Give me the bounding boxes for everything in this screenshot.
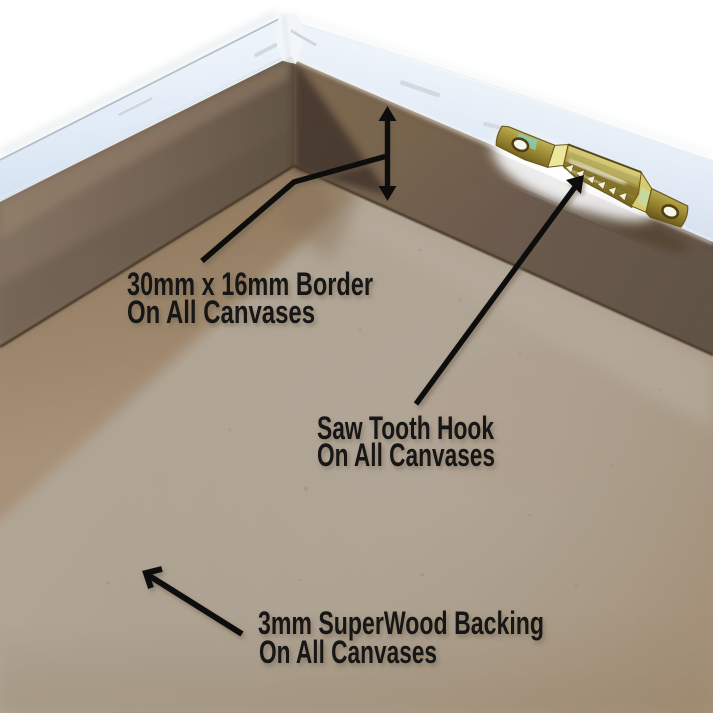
svg-text:On All Canvases: On All Canvases bbox=[317, 437, 495, 473]
svg-text:On All Canvases: On All Canvases bbox=[259, 634, 437, 670]
svg-text:On All Canvases: On All Canvases bbox=[127, 294, 315, 330]
